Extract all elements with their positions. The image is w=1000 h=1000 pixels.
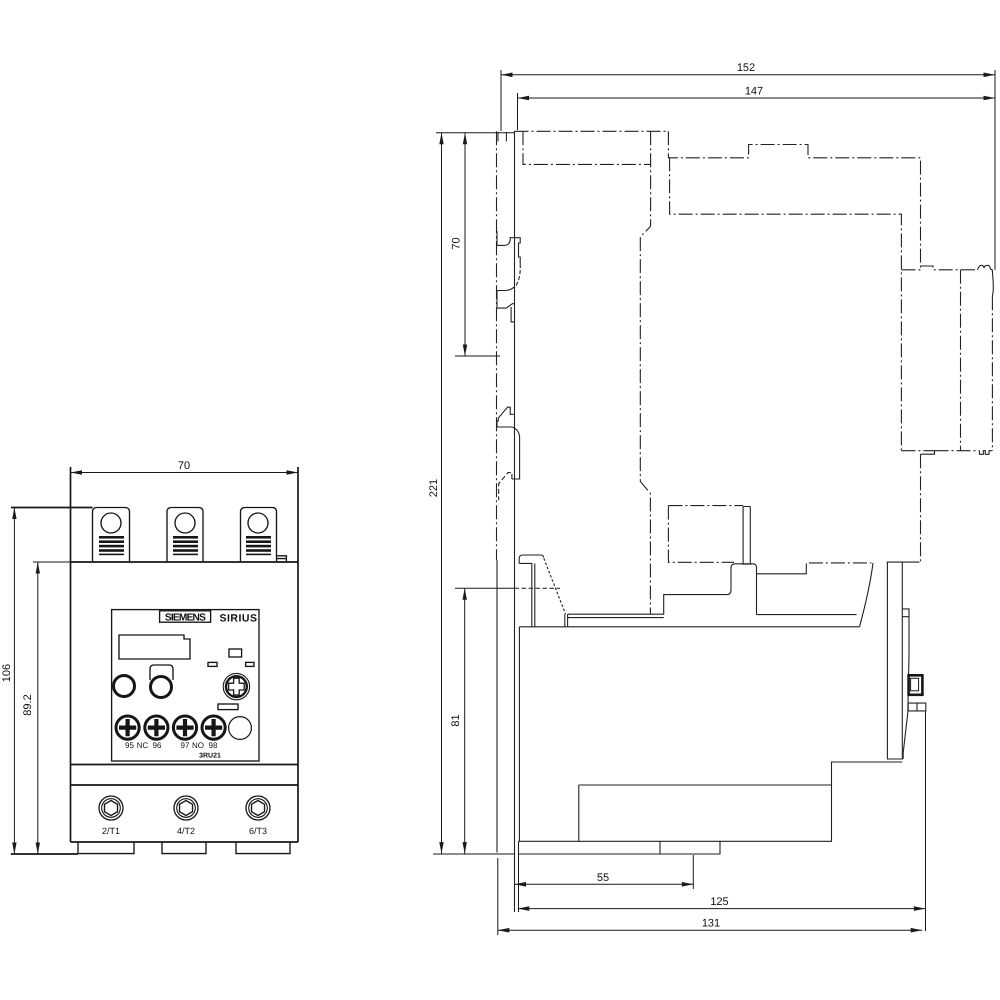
svg-text:89.2: 89.2 (22, 694, 34, 715)
svg-text:131: 131 (702, 918, 720, 930)
svg-text:98: 98 (209, 741, 218, 750)
svg-text:125: 125 (710, 896, 728, 908)
svg-text:NC: NC (137, 741, 149, 750)
svg-text:81: 81 (450, 714, 462, 726)
svg-text:152: 152 (737, 62, 755, 74)
svg-text:97: 97 (181, 741, 190, 750)
svg-text:SIRIUS: SIRIUS (219, 613, 257, 625)
svg-text:3RU21: 3RU21 (199, 753, 221, 760)
svg-text:147: 147 (745, 86, 763, 98)
svg-text:70: 70 (451, 237, 463, 249)
svg-text:221: 221 (428, 479, 440, 497)
svg-text:55: 55 (597, 872, 609, 884)
svg-text:6/T3: 6/T3 (249, 826, 267, 836)
svg-text:70: 70 (178, 460, 190, 472)
svg-text:96: 96 (153, 741, 162, 750)
svg-text:4/T2: 4/T2 (177, 826, 195, 836)
svg-text:SIEMENS: SIEMENS (165, 613, 206, 624)
svg-text:106: 106 (1, 664, 13, 682)
svg-text:95: 95 (125, 741, 134, 750)
svg-text:2/T1: 2/T1 (102, 826, 120, 836)
svg-text:NO: NO (192, 741, 204, 750)
